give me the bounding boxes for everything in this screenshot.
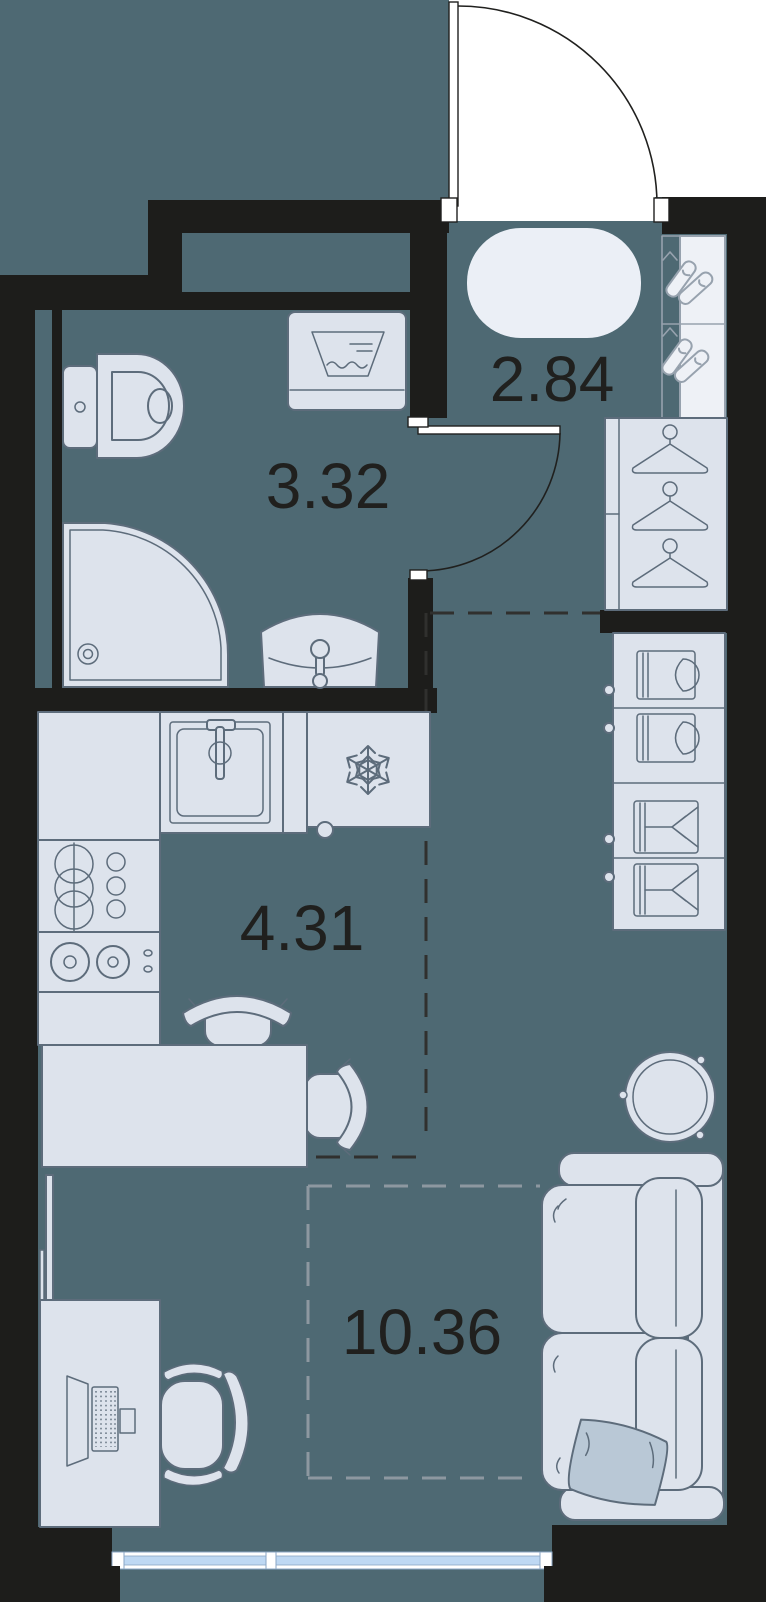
floorplan-canvas: 2.84 3.32 4.31 10.36 bbox=[0, 0, 766, 1602]
window-mullion bbox=[266, 1552, 276, 1569]
wall-right bbox=[727, 197, 766, 1602]
living-room-area-label: 10.36 bbox=[342, 1296, 502, 1368]
bathroom-sink-icon bbox=[261, 614, 379, 688]
sink-faucet-head bbox=[313, 674, 327, 688]
wall-niche-bottom bbox=[182, 292, 410, 310]
round-table-knob-3 bbox=[696, 1131, 704, 1139]
stove-icon bbox=[38, 932, 160, 992]
bathroom-door-jamb-bottom bbox=[410, 570, 427, 580]
laptop-screen bbox=[67, 1376, 88, 1466]
wall-left-lower bbox=[0, 700, 38, 1527]
entry-threshold bbox=[457, 197, 655, 221]
bathroom-area-label: 3.32 bbox=[266, 450, 391, 522]
kitchen-area-label: 4.31 bbox=[240, 892, 365, 964]
bathroom-door-leaf bbox=[418, 426, 560, 434]
window-glass bbox=[117, 1556, 547, 1565]
wall-bottom-right bbox=[552, 1525, 766, 1602]
outside-top bbox=[449, 0, 766, 197]
counter-gap bbox=[283, 712, 307, 833]
entry-door-jamb-left bbox=[441, 198, 457, 222]
kitchen-faucet-stem bbox=[216, 727, 224, 779]
shelf-knob-3 bbox=[604, 834, 614, 844]
wall-bathroom-east bbox=[410, 200, 447, 418]
washing-machine-icon bbox=[288, 312, 406, 410]
round-table-knob-2 bbox=[619, 1091, 627, 1099]
wall-niche-shaft bbox=[182, 233, 410, 292]
entry-door-leaf bbox=[449, 2, 458, 206]
wall-door-stub bbox=[408, 578, 433, 690]
hallway-area-label: 2.84 bbox=[490, 343, 615, 415]
fridge-door-notch bbox=[317, 822, 333, 838]
toilet-tank bbox=[63, 366, 97, 448]
kitchen-sink-icon bbox=[160, 712, 307, 833]
fridge-icon bbox=[307, 712, 430, 838]
counter-top-left bbox=[38, 712, 160, 840]
entry-door-jamb-right bbox=[654, 198, 669, 222]
toilet-bowl bbox=[97, 354, 184, 458]
sofa-back-cushion-1 bbox=[636, 1178, 702, 1338]
wall-left-outer bbox=[0, 275, 35, 700]
wall-bottom-left bbox=[0, 1527, 112, 1602]
wall-bathroom-south bbox=[0, 688, 437, 713]
shelf-knob-1 bbox=[604, 685, 614, 695]
wall-shaft-inner bbox=[52, 310, 62, 690]
round-table-knob-1 bbox=[697, 1056, 705, 1064]
sofa-icon bbox=[542, 1153, 724, 1520]
office-chair-seat bbox=[161, 1381, 223, 1469]
counter-bottom-left bbox=[38, 992, 160, 1045]
dish-rack-icon bbox=[38, 840, 160, 932]
wall-wardrobe-divider bbox=[600, 610, 727, 633]
shelf-knob-2 bbox=[604, 723, 614, 733]
round-table-top bbox=[625, 1052, 715, 1142]
bathroom-door-jamb-top bbox=[408, 417, 428, 427]
dining-table bbox=[42, 1045, 307, 1167]
shelf-knob-4 bbox=[604, 872, 614, 882]
window-jamb-left bbox=[110, 1566, 120, 1602]
oval-rug bbox=[467, 228, 641, 338]
toilet-icon bbox=[63, 354, 184, 458]
clothes-shelf-body bbox=[613, 633, 725, 930]
clothes-shelf-icon bbox=[604, 633, 725, 930]
wall-top-left bbox=[148, 200, 449, 233]
wardrobe-icon bbox=[605, 418, 727, 610]
floorplan-page: 2.84 3.32 4.31 10.36 bbox=[0, 0, 766, 1602]
washer-body bbox=[288, 312, 406, 410]
stove-body bbox=[38, 932, 160, 992]
sink-faucet-base bbox=[311, 640, 329, 658]
sofa-armrest-top bbox=[559, 1153, 723, 1186]
laptop-touchpad bbox=[120, 1409, 135, 1433]
window-jamb-right bbox=[544, 1566, 554, 1602]
